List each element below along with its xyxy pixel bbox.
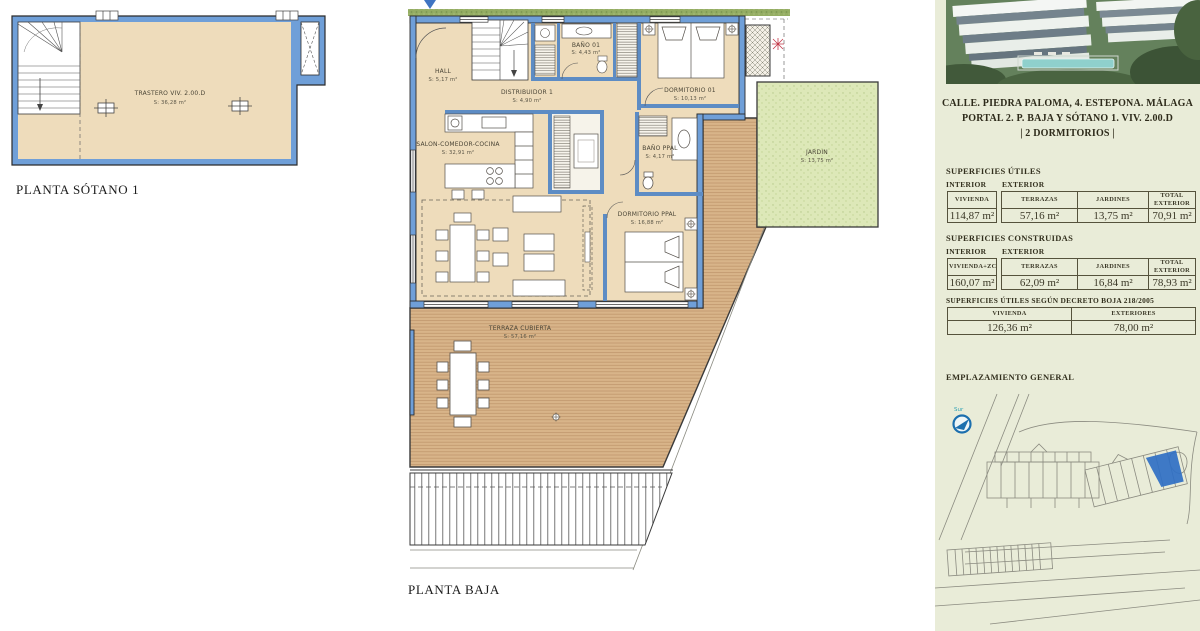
col-header: TOTAL EXTERIOR: [1149, 192, 1196, 209]
room-label-jardin: JARDIN: [805, 149, 828, 156]
entrance-arrow-icon: [424, 0, 436, 9]
elevator-shaft: [301, 22, 319, 75]
cell-value: 70,91 m²: [1149, 209, 1196, 223]
ground-floor-plan: HALL S: 5,17 m² DISTRIBUIDOR 1 S: 4,90 m…: [400, 0, 890, 622]
room-area-jardin: S: 13,75 m²: [801, 158, 834, 164]
wall-vent-icon: [96, 11, 118, 20]
col-header: VIVIENDA: [948, 308, 1072, 321]
site-map: Sur: [935, 392, 1200, 631]
construidas-interior-table: VIVIENDA+ZCC 160,07 m²: [947, 258, 997, 290]
col-header: JARDINES: [1078, 259, 1149, 276]
room-area-hall: S: 5,17 m²: [428, 77, 457, 83]
col-header: TERRAZAS: [1002, 259, 1078, 276]
col-header: TERRAZAS: [1002, 192, 1078, 209]
site-map-lines: [935, 394, 1200, 624]
section-title-emplazamiento: EMPLAZAMIENTO GENERAL: [946, 372, 1074, 382]
room-label-trastero: TRASTERO VIV. 2.00.D: [134, 90, 206, 97]
tree-icon: [772, 38, 784, 50]
room-area-terraza: S: 57,16 m²: [504, 334, 537, 340]
section-title-utiles: SUPERFICIES ÚTILES: [946, 166, 1041, 176]
planter-hatch: [746, 25, 770, 76]
hedge-strip: [408, 9, 790, 16]
wardrobe-icon: [617, 23, 637, 77]
room-area-dormitorio01: S: 10,13 m²: [674, 96, 707, 102]
col-header: EXTERIORES: [1072, 308, 1196, 321]
room-area-banoppal: S: 4,17 m²: [645, 154, 674, 160]
address-line-3: | 2 DORMITORIOS |: [935, 126, 1200, 141]
cell-value: 160,07 m²: [948, 276, 997, 290]
address-line-1: CALLE. PIEDRA PALOMA, 4. ESTEPONA. MÁLAG…: [935, 96, 1200, 111]
exterior-label: EXTERIOR: [1002, 180, 1044, 189]
interior-label: INTERIOR: [946, 247, 986, 256]
section-title-decreto: SUPERFICIES ÚTILES SEGÚN DECRETO BOJA 21…: [946, 296, 1154, 305]
decreto-table: VIVIENDA EXTERIORES 126,36 m² 78,00 m²: [947, 307, 1196, 335]
room-area-trastero: S: 36,28 m²: [154, 100, 187, 106]
cell-value: 57,16 m²: [1002, 209, 1078, 223]
exterior-label: EXTERIOR: [1002, 247, 1044, 256]
wall-vent-icon: [276, 11, 298, 20]
construidas-exterior-table: TERRAZAS JARDINES TOTAL EXTERIOR 62,09 m…: [1001, 258, 1196, 290]
laundry-closet: [535, 25, 555, 75]
cell-value: 13,75 m²: [1078, 209, 1149, 223]
room-area-bano01: S: 4,43 m²: [571, 50, 600, 56]
room-label-banoppal: BAÑO PPAL: [642, 145, 678, 152]
basement-floor-plan: TRASTERO VIV. 2.00.D S: 36,28 m² PLANTA …: [10, 8, 355, 208]
cell-value: 78,00 m²: [1072, 321, 1196, 335]
highlighted-unit: [1146, 450, 1184, 489]
utiles-exterior-table: TERRAZAS JARDINES TOTAL EXTERIOR 57,16 m…: [1001, 191, 1196, 223]
room-label-dormitorioppal: DORMITORIO PPAL: [618, 211, 677, 218]
col-header: VIVIENDA+ZCC: [948, 259, 997, 276]
col-header: VIVIENDA: [948, 192, 997, 209]
interior-label: INTERIOR: [946, 180, 986, 189]
cell-value: 114,87 m²: [948, 209, 997, 223]
room-label-hall: HALL: [435, 68, 452, 75]
building-render-photo: [946, 0, 1200, 84]
room-area-dormitorioppal: S: 16,88 m²: [631, 220, 664, 226]
pergola-slats: [410, 470, 673, 545]
room-label-salon: SALON-COMEDOR-COCINA: [416, 141, 500, 148]
compass-label: Sur: [954, 407, 964, 413]
building-cluster-left: [987, 444, 1099, 508]
room-label-terraza: TERRAZA CUBIERTA: [488, 325, 552, 332]
cell-value: 78,93 m²: [1149, 276, 1196, 290]
room-area-distribuidor: S: 4,90 m²: [512, 98, 541, 104]
basement-plan-title: PLANTA SÓTANO 1: [16, 182, 139, 197]
room-area-salon: S: 32,91 m²: [442, 150, 475, 156]
room-label-dormitorio01: DORMITORIO 01: [664, 87, 716, 94]
utiles-interior-table: VIVIENDA 114,87 m²: [947, 191, 997, 223]
compass-icon: Sur: [954, 407, 971, 433]
col-header: JARDINES: [1078, 192, 1149, 209]
main-plan-title: PLANTA BAJA: [408, 582, 500, 597]
basement-stairs-icon: [18, 22, 80, 114]
address-line-2: PORTAL 2. P. BAJA Y SÓTANO 1. VIV. 2.00.…: [935, 111, 1200, 126]
section-title-construidas: SUPERFICIES CONSTRUIDAS: [946, 233, 1073, 243]
room-label-distribuidor: DISTRIBUIDOR 1: [501, 89, 553, 96]
address-block: CALLE. PIEDRA PALOMA, 4. ESTEPONA. MÁLAG…: [935, 96, 1200, 141]
info-panel: CALLE. PIEDRA PALOMA, 4. ESTEPONA. MÁLAG…: [935, 0, 1200, 631]
pool: [1022, 59, 1114, 68]
col-header: TOTAL EXTERIOR: [1149, 259, 1196, 276]
cell-value: 16,84 m²: [1078, 276, 1149, 290]
building-core: [550, 112, 602, 192]
cell-value: 126,36 m²: [948, 321, 1072, 335]
cell-value: 62,09 m²: [1002, 276, 1078, 290]
room-label-bano01: BAÑO 01: [572, 42, 600, 49]
stairs-icon: [472, 20, 528, 80]
